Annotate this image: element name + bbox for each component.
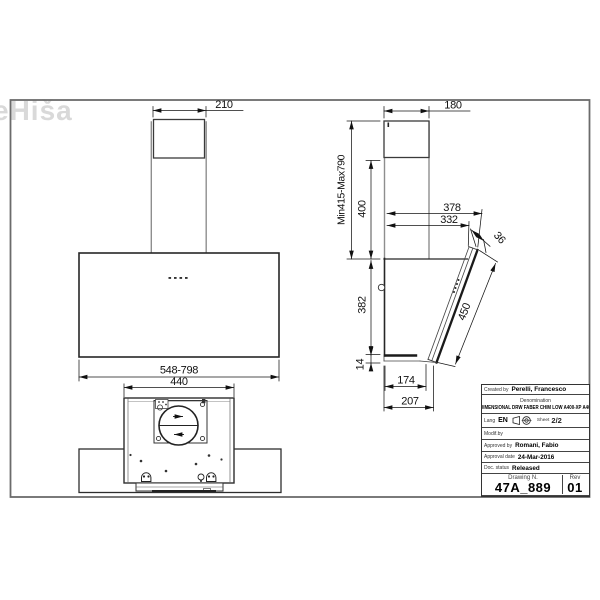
chimney-upper-section	[154, 120, 205, 159]
approval-date-value: 24-Mar-2016	[518, 454, 554, 461]
hood-body-front	[79, 253, 279, 357]
approval-date-label: Approval date	[484, 454, 515, 460]
dim-body-height: 382	[357, 296, 369, 314]
drawing-n-value: 47A_889	[495, 481, 551, 494]
title-row-modif: Modif.by	[482, 428, 589, 440]
doc-status-value: Released	[512, 465, 540, 472]
dim-chimney-width: 210	[215, 99, 233, 111]
dim-chimney-height: 400	[357, 200, 369, 218]
modif-by-label: Modif.by	[484, 431, 503, 437]
dim-depth: 180	[444, 100, 462, 112]
approved-by-label: Approved by	[484, 443, 512, 449]
dim-body-width: 548-798	[160, 365, 198, 377]
wall-hook-hole	[378, 284, 384, 290]
cable-clamp	[156, 400, 169, 411]
dim-bottom-depth: 174	[397, 375, 415, 387]
title-row-denomination: Denomination DIMENSIONAL DRW FABER CHIM …	[482, 395, 589, 414]
inclined-glass-panel	[428, 247, 478, 363]
first-angle-projection-icon	[512, 416, 532, 425]
plate-mark	[202, 399, 205, 403]
created-by-value: Perelli, Francesco	[511, 386, 566, 393]
dim-bottom-width: 440	[170, 376, 188, 388]
front-view: 210 548-798	[79, 99, 279, 381]
rev-value: 01	[567, 481, 582, 494]
title-row-doc-status: Doc. status Released	[482, 463, 589, 474]
denomination-label: Denomination	[520, 398, 551, 404]
dim-glass-top-depth: 332	[440, 214, 458, 226]
title-row-approved: Approved by Romani, Fabio	[482, 440, 589, 452]
title-row-drawing-number: Drawing N. 47A_889 Rev 01	[482, 474, 589, 496]
title-row-created: Created by Perelli, Francesco	[482, 385, 589, 395]
dim-14-lines	[366, 348, 380, 371]
sheet-value: 2/2	[551, 416, 561, 425]
mounting-bar	[136, 483, 223, 492]
approved-by-value: Romani, Fabio	[515, 442, 558, 449]
drawing-number-cell: Drawing N. 47A_889	[484, 475, 563, 494]
doc-status-label: Doc. status	[484, 465, 509, 471]
title-block: Created by Perelli, Francesco Denominati…	[481, 384, 590, 497]
dim-height-range: Min415-Max790	[336, 154, 348, 225]
bottom-view: 440	[79, 376, 281, 493]
sheet-label: Sheet	[537, 418, 550, 423]
lang-value: EN	[498, 417, 508, 424]
technical-drawing: 210 548-798	[0, 0, 600, 600]
lang-label: Lang	[484, 418, 495, 424]
created-by-label: Created by	[484, 387, 508, 393]
chimney-upper-side	[384, 121, 429, 158]
drawing-page: eHiša	[0, 0, 600, 600]
title-row-approval-date: Approval date 24-Mar-2016	[482, 452, 589, 463]
dim-top-depth: 378	[443, 202, 461, 214]
dim-36-lines	[471, 229, 491, 253]
revision-cell: Rev 01	[563, 475, 587, 494]
denomination-value: DIMENSIONAL DRW FABER CHIM LOW A400-XP A…	[482, 405, 589, 411]
dim-bottom-lip: 14	[355, 359, 367, 371]
title-row-lang: Lang EN Sheet 2/2	[482, 414, 589, 428]
dim-glass-edge: 36	[491, 230, 508, 247]
dim-total-bottom-depth: 207	[401, 396, 419, 408]
dim-378-lines	[387, 210, 482, 248]
side-view: 180 Min415-Max790 400 378	[336, 100, 508, 412]
dim-height-range-lines	[347, 121, 380, 259]
